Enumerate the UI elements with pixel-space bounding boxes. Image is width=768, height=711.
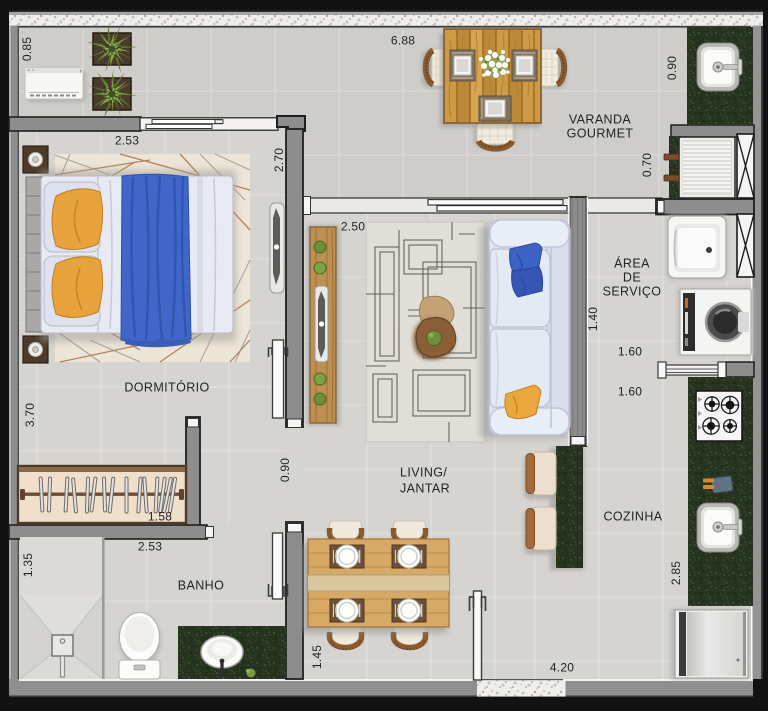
svg-text:1.58: 1.58 <box>148 510 172 524</box>
svg-text:1.35: 1.35 <box>21 553 35 577</box>
svg-text:DORMITÓRIO: DORMITÓRIO <box>124 380 209 395</box>
svg-text:1.60: 1.60 <box>618 385 642 399</box>
svg-text:2.85: 2.85 <box>669 561 683 585</box>
svg-text:SERVIÇO: SERVIÇO <box>603 285 662 299</box>
svg-text:2.70: 2.70 <box>272 148 286 172</box>
svg-text:1.45: 1.45 <box>310 645 324 669</box>
svg-text:1.60: 1.60 <box>618 345 642 359</box>
svg-text:6.88: 6.88 <box>391 34 415 48</box>
svg-text:VARANDA: VARANDA <box>569 113 632 127</box>
svg-text:0.85: 0.85 <box>20 37 34 61</box>
svg-text:DE: DE <box>623 271 641 285</box>
svg-text:GOURMET: GOURMET <box>567 127 634 141</box>
svg-text:BANHO: BANHO <box>178 579 224 593</box>
svg-text:JANTAR: JANTAR <box>400 482 450 496</box>
svg-text:LIVING/: LIVING/ <box>400 466 447 480</box>
svg-text:4.20: 4.20 <box>550 661 574 675</box>
svg-text:0.90: 0.90 <box>665 56 679 80</box>
svg-text:2.53: 2.53 <box>115 134 139 148</box>
svg-text:0.90: 0.90 <box>278 458 292 482</box>
svg-text:ÁREA: ÁREA <box>614 256 650 271</box>
svg-text:COZINHA: COZINHA <box>603 510 662 524</box>
svg-text:1.40: 1.40 <box>586 307 600 331</box>
svg-text:0.70: 0.70 <box>640 153 654 177</box>
svg-text:3.70: 3.70 <box>23 403 37 427</box>
svg-text:2.53: 2.53 <box>138 540 162 554</box>
svg-text:2.50: 2.50 <box>341 220 365 234</box>
